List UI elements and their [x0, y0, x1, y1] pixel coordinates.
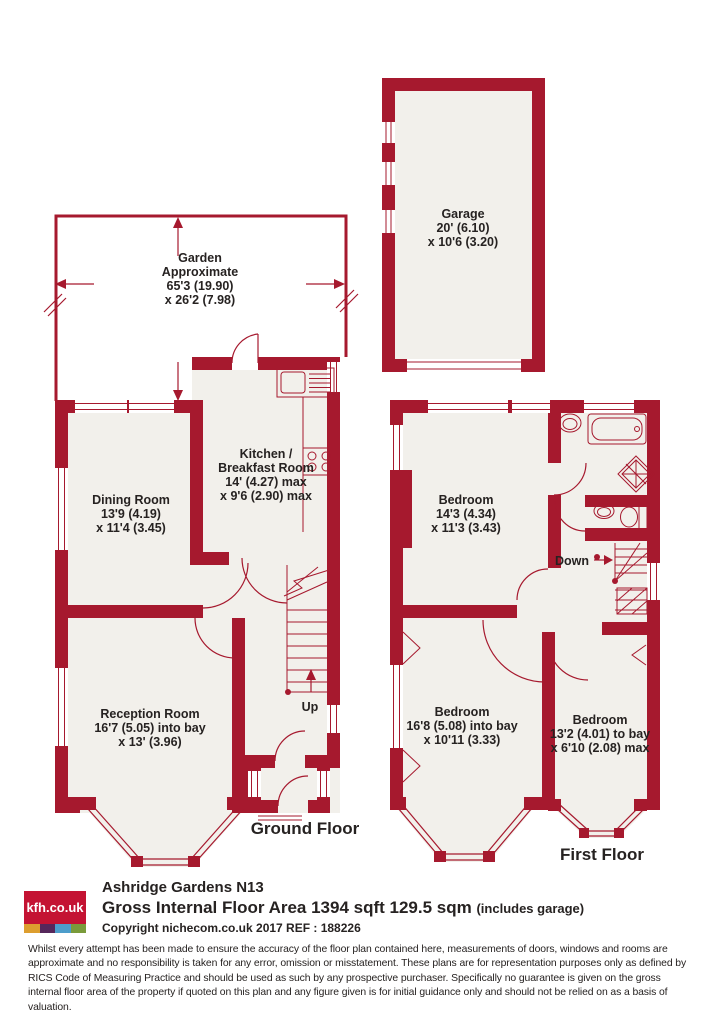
bedroom1-label: Bedroom 14'3 (4.34) x 11'3 (3.43) [431, 493, 501, 535]
garden-label: Garden Approximate 65'3 (19.90) x 26'2 (… [162, 251, 238, 307]
logo-square-green [71, 924, 87, 933]
svg-text:Dining Room: Dining Room [92, 493, 170, 507]
floor-plan-svg: Garden Approximate 65'3 (19.90) x 26'2 (… [0, 0, 715, 875]
svg-text:Garden: Garden [178, 251, 222, 265]
svg-text:Kitchen /: Kitchen / [240, 447, 293, 461]
svg-text:14' (4.27) max: 14' (4.27) max [225, 475, 307, 489]
ground-floor: Up Dining Room 13'9 (4.19 [55, 334, 360, 867]
svg-text:Up: Up [302, 700, 319, 714]
floor-area-main: Gross Internal Floor Area 1394 sqft 129.… [102, 898, 472, 917]
svg-text:14'3 (4.34): 14'3 (4.34) [436, 507, 496, 521]
svg-text:Breakfast Room: Breakfast Room [218, 461, 314, 475]
svg-text:x 10'11 (3.33): x 10'11 (3.33) [424, 733, 501, 747]
svg-text:Bedroom: Bedroom [573, 713, 628, 727]
dining-room-label: Dining Room 13'9 (4.19) x 11'4 (3.45) [92, 493, 170, 535]
garage-windows [382, 122, 395, 233]
svg-text:Bedroom: Bedroom [439, 493, 494, 507]
disclaimer-text: Whilst every attempt has been made to en… [28, 943, 690, 1015]
logo-square-purple [40, 924, 56, 933]
svg-text:13'2 (4.01) to bay: 13'2 (4.01) to bay [550, 727, 650, 741]
svg-text:20' (6.10): 20' (6.10) [436, 221, 489, 235]
first-floor: Down [390, 400, 660, 864]
svg-text:x 11'4 (3.45): x 11'4 (3.45) [96, 521, 166, 535]
svg-text:16'8 (5.08) into bay: 16'8 (5.08) into bay [406, 719, 517, 733]
ground-floor-title: Ground Floor [251, 819, 360, 838]
first-floor-title: First Floor [560, 845, 644, 864]
kfh-logo: kfh.co.uk [24, 891, 86, 933]
floor-area-note: (includes garage) [476, 901, 584, 916]
svg-text:x 9'6 (2.90) max: x 9'6 (2.90) max [220, 489, 312, 503]
svg-text:x 10'6 (3.20): x 10'6 (3.20) [428, 235, 498, 249]
svg-text:Garage: Garage [441, 207, 484, 221]
svg-text:x 26'2 (7.98): x 26'2 (7.98) [165, 293, 235, 307]
svg-text:Bedroom: Bedroom [435, 705, 490, 719]
svg-text:Reception Room: Reception Room [100, 707, 199, 721]
svg-text:Approximate: Approximate [162, 265, 238, 279]
svg-text:x 6'10 (2.08) max: x 6'10 (2.08) max [551, 741, 650, 755]
kfh-logo-squares [24, 924, 86, 933]
floor-area-line: Gross Internal Floor Area 1394 sqft 129.… [102, 898, 584, 918]
svg-text:13'9 (4.19): 13'9 (4.19) [101, 507, 161, 521]
logo-square-orange [24, 924, 40, 933]
svg-text:x 13' (3.96): x 13' (3.96) [118, 735, 181, 749]
property-address: Ashridge Gardens N13 [102, 879, 264, 896]
svg-text:65'3 (19.90): 65'3 (19.90) [167, 279, 234, 293]
svg-text:x 11'3 (3.43): x 11'3 (3.43) [431, 521, 501, 535]
garage: Garage 20' (6.10) x 10'6 (3.20) [382, 78, 545, 372]
kfh-logo-text: kfh.co.uk [24, 891, 86, 924]
chimney-breast [403, 470, 412, 548]
door-arc [232, 334, 258, 370]
svg-text:16'7 (5.05) into bay: 16'7 (5.05) into bay [94, 721, 205, 735]
copyright-line: Copyright nichecom.co.uk 2017 REF : 1882… [102, 921, 361, 935]
svg-text:Down: Down [555, 554, 589, 568]
garage-door [407, 359, 521, 372]
logo-square-blue [55, 924, 71, 933]
